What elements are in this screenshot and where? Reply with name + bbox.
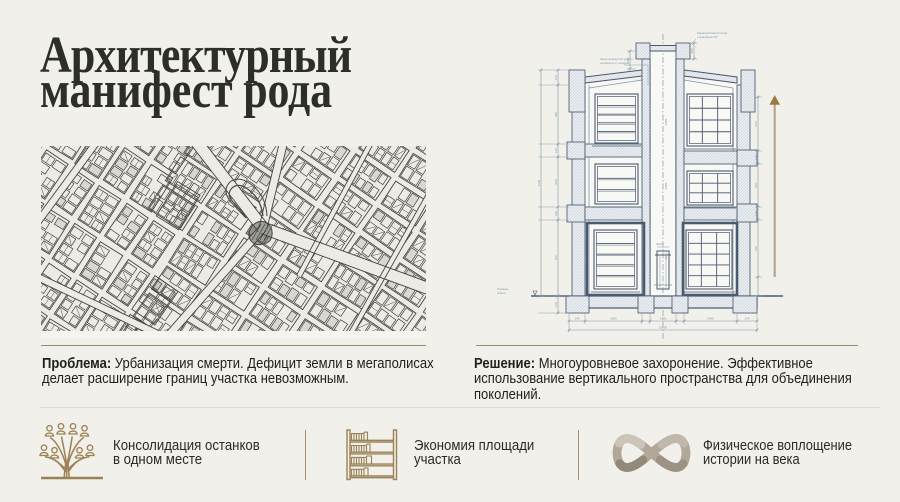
svg-text:с клапаном 45°: с клапаном 45°	[697, 35, 719, 39]
svg-text:земли: земли	[497, 291, 506, 295]
svg-text:130: 130	[754, 211, 758, 216]
svg-text:2000: 2000	[656, 242, 663, 246]
svg-text:130: 130	[554, 211, 558, 216]
svg-text:450: 450	[690, 48, 694, 53]
svg-text:2950: 2950	[664, 118, 668, 125]
svg-text:140: 140	[744, 317, 749, 321]
svg-text:170: 170	[554, 302, 558, 307]
svg-text:590: 590	[554, 112, 558, 117]
svg-text:10600: 10600	[659, 326, 668, 330]
svg-text:430: 430	[754, 183, 758, 188]
svg-text:2950: 2950	[664, 182, 668, 189]
svg-text:1300: 1300	[660, 317, 667, 321]
svg-text:5140: 5140	[537, 179, 541, 186]
svg-text:130: 130	[754, 155, 758, 160]
svg-text:2400: 2400	[707, 317, 714, 321]
svg-text:3000: 3000	[664, 252, 668, 259]
svg-text:760: 760	[554, 255, 558, 260]
svg-text:570: 570	[754, 246, 758, 251]
svg-text:500: 500	[554, 179, 558, 184]
svg-text:540: 540	[754, 121, 758, 126]
svg-text:2400: 2400	[610, 317, 617, 321]
svg-text:700: 700	[626, 57, 630, 62]
svg-text:140: 140	[574, 317, 579, 321]
svg-text:140: 140	[554, 75, 558, 80]
svg-text:130: 130	[554, 148, 558, 153]
